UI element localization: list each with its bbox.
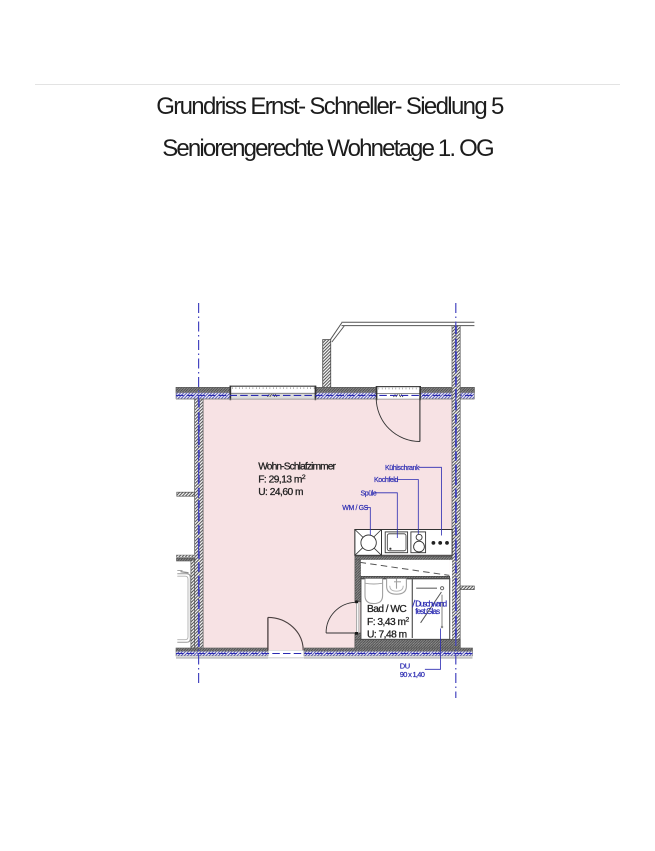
svg-text:fest.Glas: fest.Glas	[415, 607, 440, 616]
svg-text:90 x 1,40: 90 x 1,40	[400, 670, 425, 679]
svg-text:U: 24,60 m: U: 24,60 m	[258, 487, 303, 498]
svg-text:Kühlschrank: Kühlschrank	[385, 465, 420, 472]
svg-text:Spüle: Spüle	[361, 491, 377, 498]
svg-text:Wohn-Schlafzimmer: Wohn-Schlafzimmer	[258, 462, 336, 473]
svg-text:Bad / WC: Bad / WC	[367, 604, 406, 615]
svg-text:DU: DU	[400, 661, 410, 670]
svg-text:U: 7,48 m: U: 7,48 m	[367, 630, 407, 641]
svg-text:F: 29,13 m2: F: 29,13 m2	[258, 474, 306, 486]
svg-text:Kochfeld: Kochfeld	[374, 477, 399, 484]
svg-text:F: 3,43 m2: F: 3,43 m2	[367, 617, 410, 629]
svg-text:WM / GS: WM / GS	[342, 505, 368, 512]
